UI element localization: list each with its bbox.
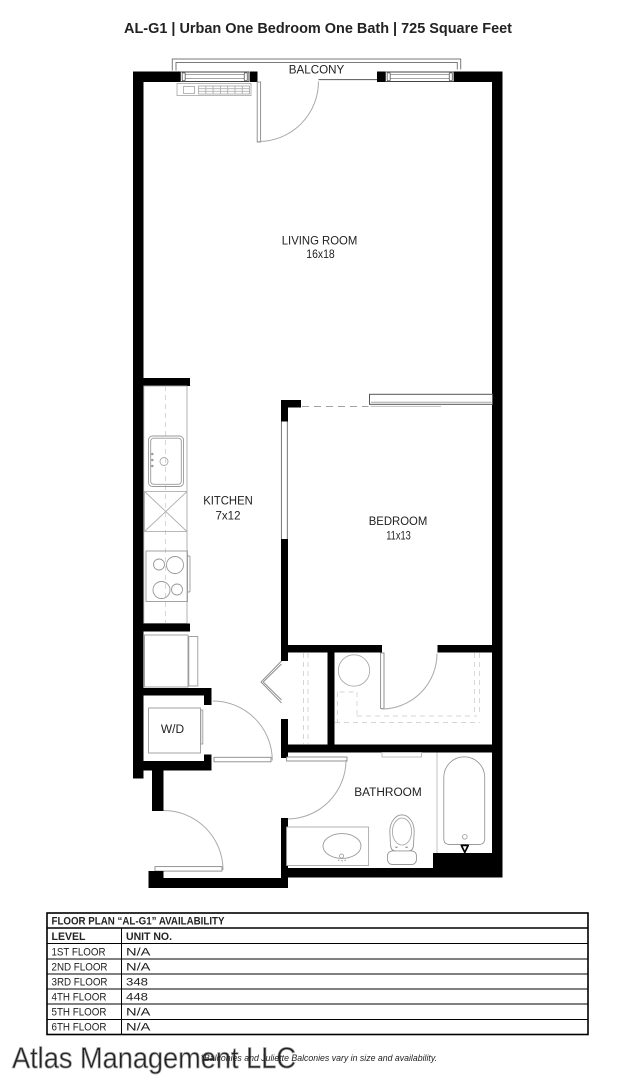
svg-text:N/A: N/A: [126, 962, 151, 974]
svg-text:448: 448: [126, 992, 148, 1004]
svg-text:BALCONY: BALCONY: [289, 63, 345, 77]
svg-text:N/A: N/A: [126, 1007, 151, 1019]
svg-text:7x12: 7x12: [216, 509, 241, 523]
svg-text:4TH FLOOR: 4TH FLOOR: [52, 992, 107, 1004]
svg-text:AL-G1 | Urban One Bedroom One: AL-G1 | Urban One Bedroom One Bath | 725…: [124, 21, 512, 37]
svg-text:2ND FLOOR: 2ND FLOOR: [52, 962, 108, 974]
svg-text:N/A: N/A: [126, 947, 151, 959]
svg-text:5TH FLOOR: 5TH FLOOR: [52, 1007, 107, 1019]
svg-text:16x18: 16x18: [306, 247, 335, 261]
svg-text:BEDROOM: BEDROOM: [369, 514, 428, 528]
svg-text:*Balconies and Juliette Balcon: *Balconies and Juliette Balconies vary i…: [201, 1053, 438, 1063]
svg-text:LIVING ROOM: LIVING ROOM: [282, 234, 358, 248]
svg-text:N/A: N/A: [126, 1022, 151, 1034]
svg-text:3RD FLOOR: 3RD FLOOR: [52, 977, 108, 989]
svg-text:BATHROOM: BATHROOM: [354, 785, 422, 799]
svg-text:LEVEL: LEVEL: [52, 931, 86, 943]
svg-text:6TH FLOOR: 6TH FLOOR: [52, 1022, 107, 1034]
svg-text:11x13: 11x13: [386, 529, 411, 543]
svg-text:FLOOR PLAN “AL-G1” AVAILABILIT: FLOOR PLAN “AL-G1” AVAILABILITY: [52, 915, 225, 927]
svg-text:UNIT NO.: UNIT NO.: [126, 931, 172, 943]
svg-text:W/D: W/D: [161, 722, 184, 736]
svg-text:348: 348: [126, 977, 148, 989]
svg-text:KITCHEN: KITCHEN: [203, 494, 253, 508]
svg-text:1ST FLOOR: 1ST FLOOR: [52, 947, 106, 959]
